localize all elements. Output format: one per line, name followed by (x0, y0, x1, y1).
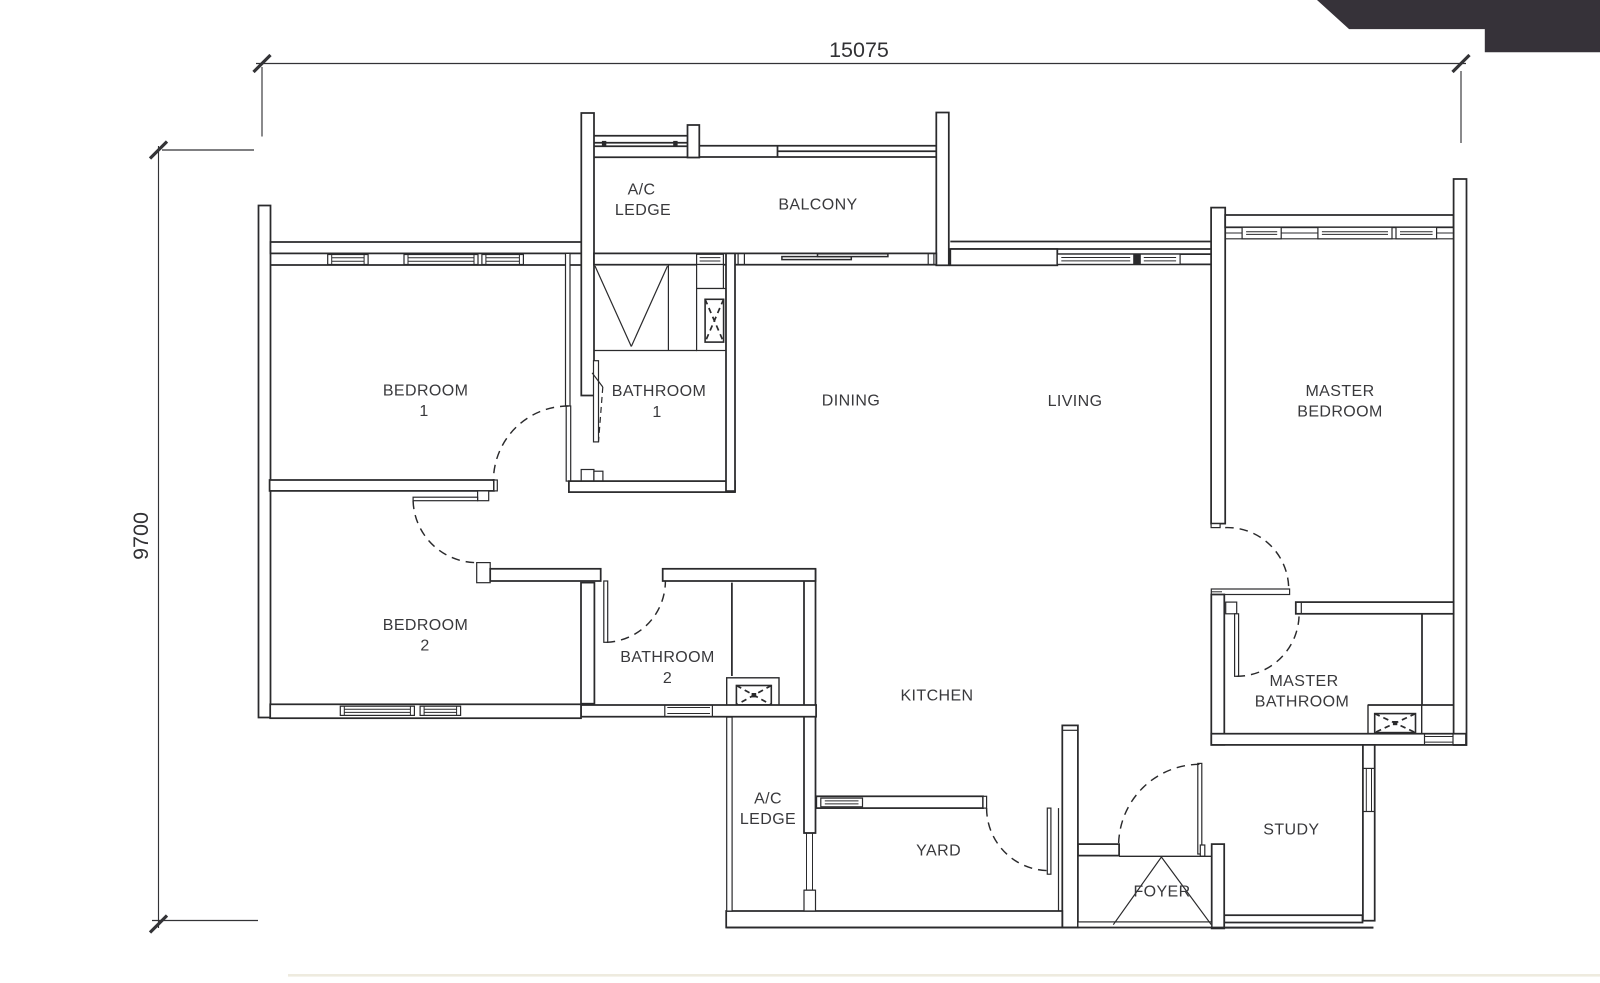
svg-text:BATHROOM: BATHROOM (620, 649, 714, 666)
svg-text:2: 2 (663, 670, 672, 687)
svg-text:LIVING: LIVING (1048, 393, 1103, 410)
svg-text:A/C: A/C (754, 791, 782, 808)
svg-text:STUDY: STUDY (1263, 822, 1319, 839)
svg-text:DINING: DINING (822, 393, 880, 410)
svg-text:FOYER: FOYER (1133, 884, 1190, 901)
svg-text:BATHROOM: BATHROOM (612, 383, 706, 400)
svg-text:BALCONY: BALCONY (778, 197, 857, 214)
svg-text:BATHROOM: BATHROOM (1255, 693, 1349, 710)
svg-text:MASTER: MASTER (1269, 673, 1338, 690)
svg-text:BEDROOM: BEDROOM (383, 617, 468, 634)
svg-text:15075: 15075 (829, 38, 889, 62)
svg-text:LEDGE: LEDGE (615, 202, 671, 219)
svg-text:BEDROOM: BEDROOM (383, 383, 468, 400)
svg-text:BEDROOM: BEDROOM (1297, 404, 1382, 421)
svg-text:LEDGE: LEDGE (740, 811, 796, 828)
svg-text:MASTER: MASTER (1305, 383, 1374, 400)
svg-text:KITCHEN: KITCHEN (900, 688, 973, 705)
svg-text:A/C: A/C (628, 182, 656, 199)
svg-text:1: 1 (652, 404, 661, 421)
svg-text:YARD: YARD (916, 843, 961, 860)
svg-text:9700: 9700 (129, 512, 153, 560)
svg-text:2: 2 (420, 638, 429, 655)
svg-text:1: 1 (419, 403, 428, 420)
